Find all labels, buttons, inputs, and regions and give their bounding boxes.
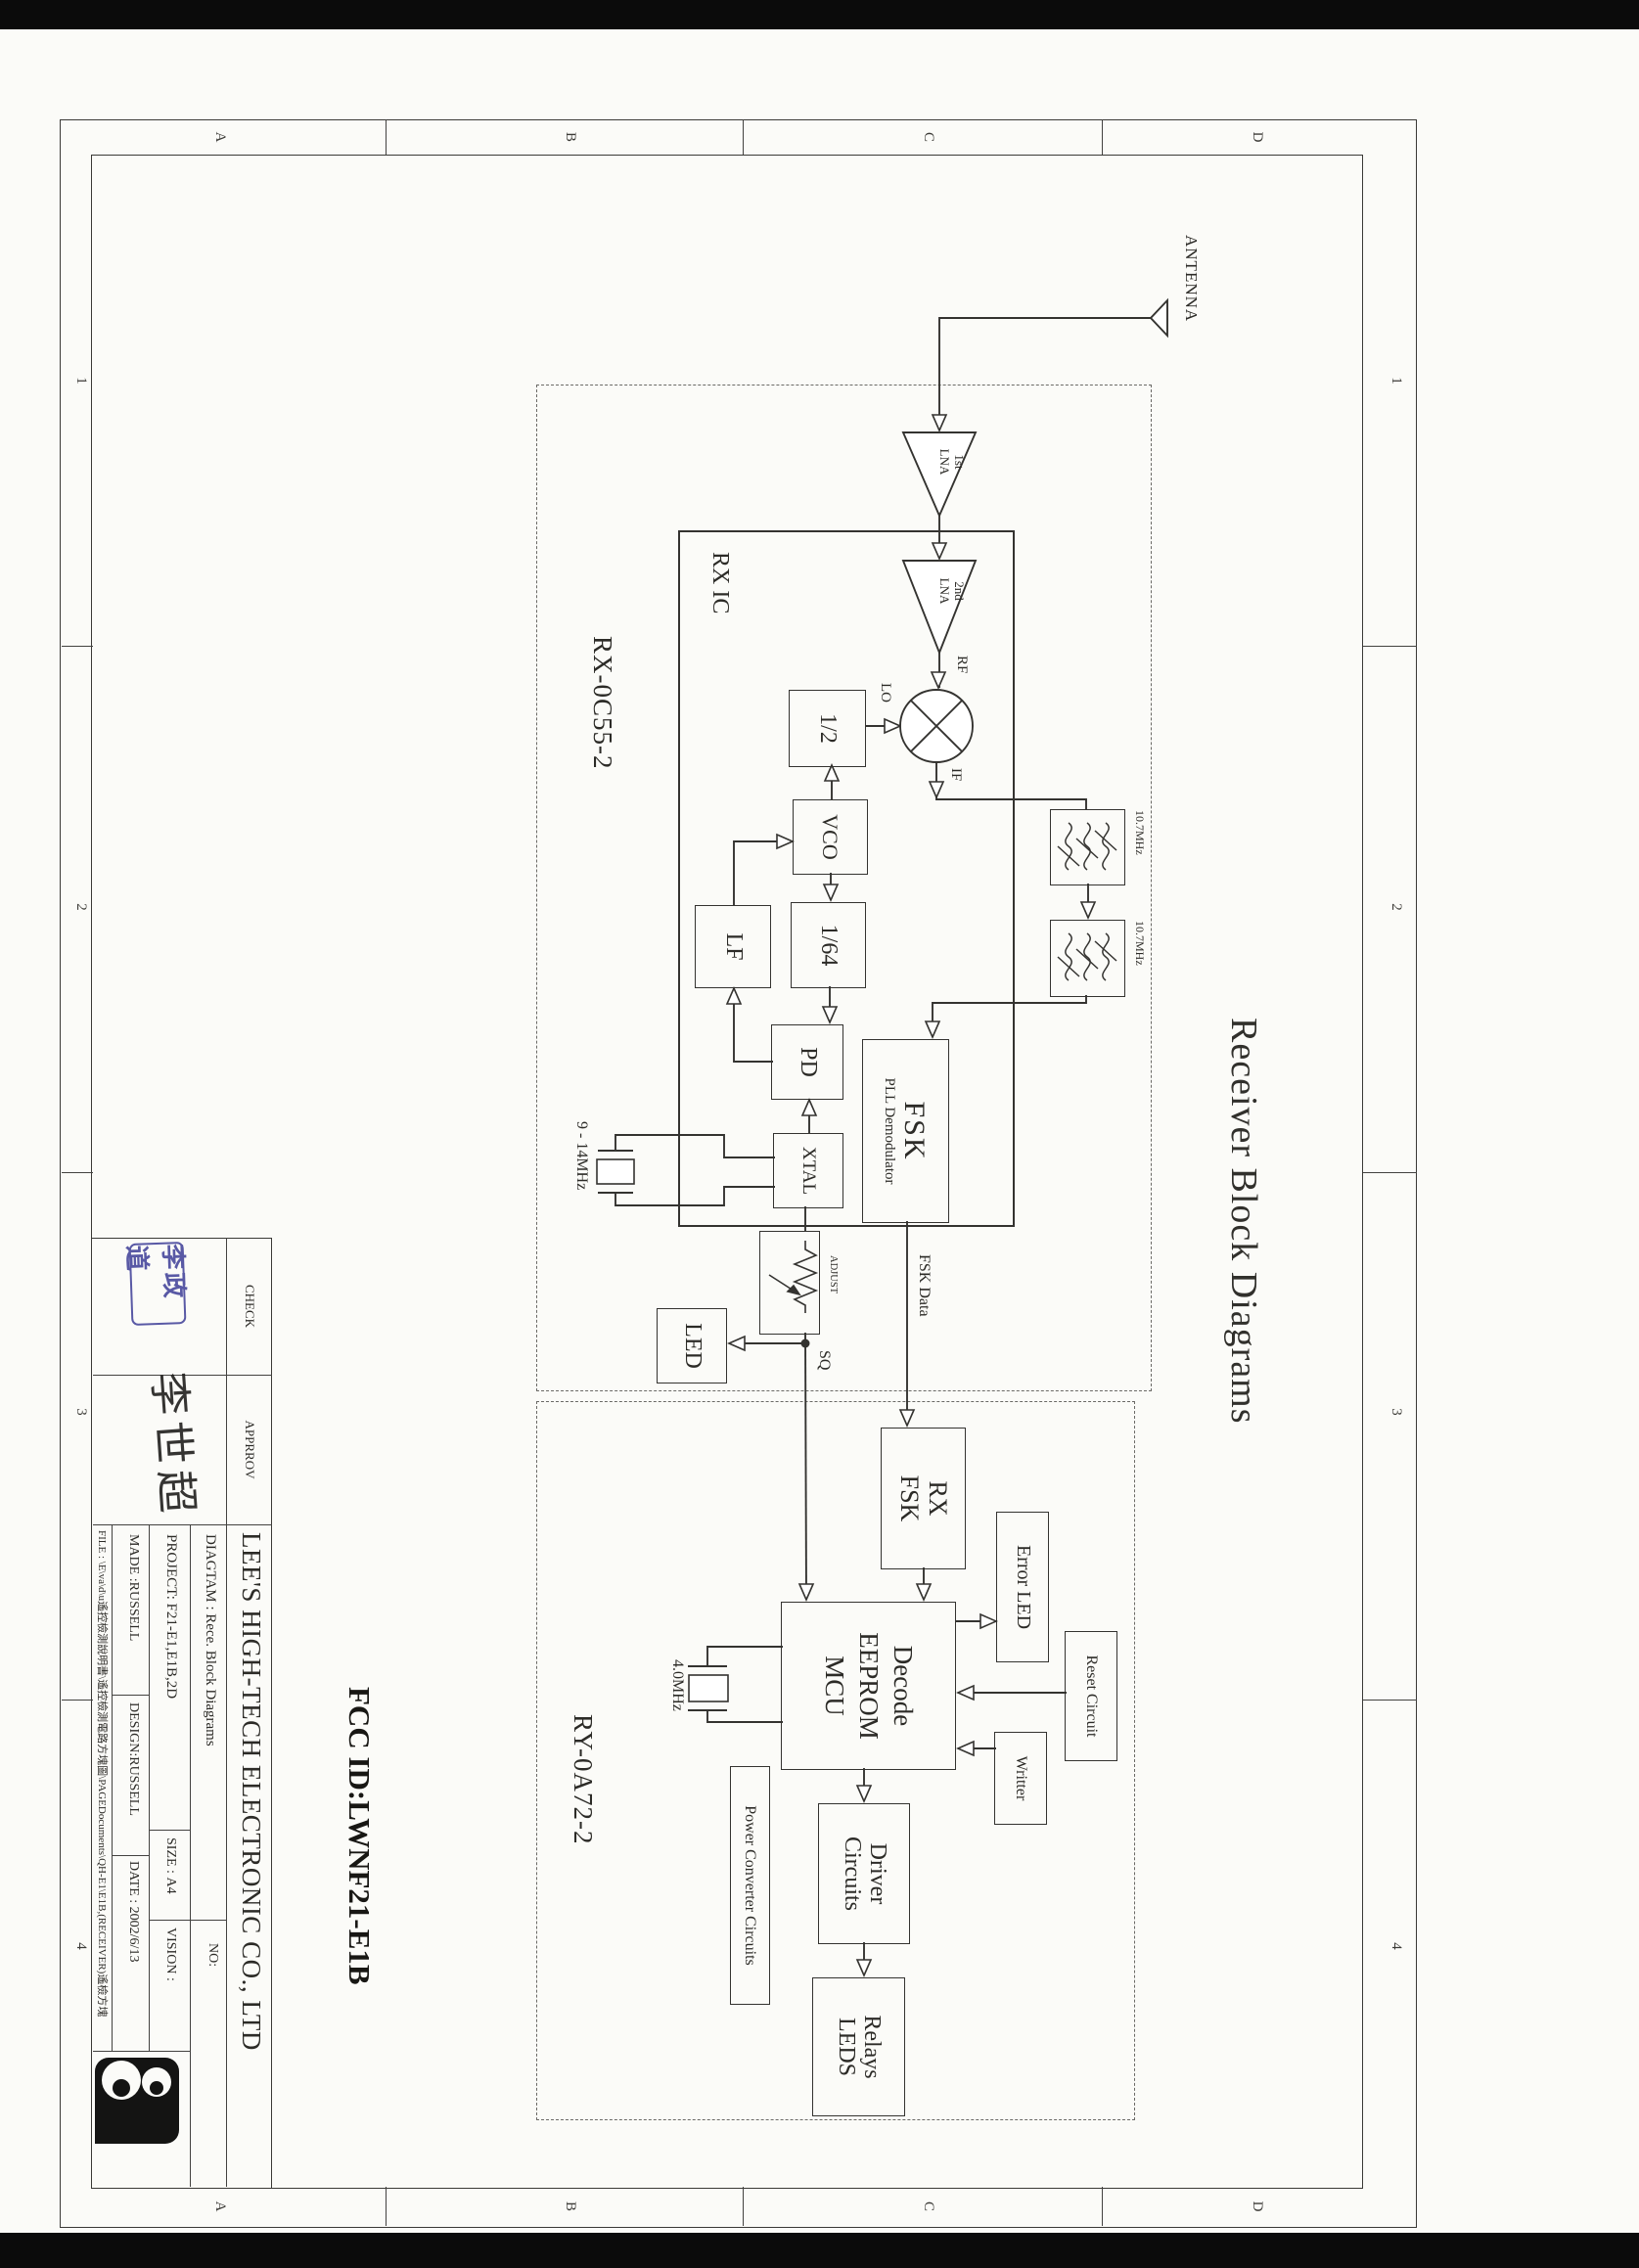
adjust-pot-box: [759, 1231, 820, 1335]
check-label: CHECK: [242, 1238, 257, 1375]
mcu-box: DecodeEEPROMMCU: [781, 1602, 956, 1770]
if-label: IF: [947, 768, 964, 781]
wire-junction-dot: [801, 1339, 810, 1348]
if-freq2-label: 10.7MHz: [1132, 921, 1147, 966]
error-led-box: Error LED: [996, 1512, 1049, 1662]
arrow-into-lna1: [933, 415, 946, 431]
fsk-demodulator-box: FSK PLL Demodulator: [862, 1039, 949, 1223]
rx-ic-label: RX IC: [706, 552, 733, 613]
check-stamp: 李政道: [129, 1242, 187, 1326]
lna2-label: 2ndLNA: [936, 565, 966, 617]
scanned-page: { "document": { "title": "Receiver Block…: [0, 0, 1639, 2268]
project-row: PROJECT: F21-E1,E1B,2D: [162, 1534, 179, 1699]
no-label: NO:: [205, 1943, 220, 1967]
approve-signature: 李世超: [141, 1370, 213, 1520]
rf-label: RF: [953, 656, 970, 673]
arrow-into-led: [729, 1337, 745, 1350]
if-filter2-box: [1050, 920, 1125, 997]
led-box: LED: [657, 1308, 727, 1383]
arrow-into-driver: [857, 1786, 871, 1801]
rx-ic-box: [678, 530, 1015, 1227]
adjust-label: ADJUST: [828, 1255, 839, 1293]
if-freq1-label: 10.7MHz: [1132, 810, 1147, 855]
lna1-label: 1stLNA: [936, 436, 966, 487]
drawing-sheet: D C B A D C B A 1 2 3 4 1 2 3 4 Receiver…: [0, 0, 1639, 2268]
mcu-clock-label: 4.0MHz: [668, 1659, 686, 1711]
arrow-into-filter2: [1081, 902, 1095, 918]
arrow-into-errorled: [980, 1614, 996, 1628]
title-block-line: [190, 1524, 191, 2187]
title-block-line: [93, 1524, 272, 1525]
divider-half-box: 1/2: [789, 690, 866, 767]
date-cell: DATE : 2002/6/13: [125, 1861, 141, 1962]
approve-label: APPRROV: [242, 1375, 257, 1524]
title-block-line: [113, 1695, 150, 1696]
rx-fsk-box: RXFSK: [881, 1428, 966, 1569]
title-block-line: [149, 1524, 150, 2051]
antenna-icon: [1130, 300, 1167, 336]
wire-antenna-to-lna1: [939, 318, 1152, 431]
file-cell: FILE : \E\va\d\u遙控檢測說明書\遙控檢測電路方塊圖\PAGEDo…: [95, 1530, 111, 2137]
lo-label: LO: [877, 683, 893, 703]
title-block-line: [113, 1855, 150, 1856]
wire-sq-to-mcu: [805, 1333, 806, 1598]
relays-leds-box: RelaysLEDS: [812, 1977, 905, 2116]
design-cell: DESIGN:RUSSELL: [125, 1702, 141, 1816]
title-block-line: [150, 1920, 227, 1921]
xtal-box: XTAL: [773, 1133, 843, 1208]
divider-64-box: 1/64: [791, 902, 866, 988]
crystal-9-14-icon: [597, 1151, 634, 1193]
driver-circuits-box: DriverCircuits: [818, 1803, 910, 1944]
arrow-reset-into-mcu: [958, 1686, 974, 1700]
reset-circuit-box: Reset Circuit: [1065, 1631, 1117, 1761]
power-converter-box: Power Converter Circuits: [730, 1766, 770, 2005]
sq-label: SQ: [815, 1350, 833, 1370]
title-block-line: [226, 1238, 227, 2187]
if-filter1-box: [1050, 809, 1125, 885]
fsk-data-label: FSK Data: [915, 1254, 933, 1317]
arrow-into-rxfsk: [900, 1410, 914, 1426]
made-cell: MADE :RUSSELL: [125, 1534, 141, 1641]
arrow-writter-into-mcu: [958, 1742, 974, 1755]
lf-box: LF: [695, 905, 771, 988]
xtal-range-label: 9 - 14MHz: [572, 1121, 590, 1190]
crystal-4mhz-icon: [688, 1666, 728, 1710]
size-cell: SIZE : A4: [162, 1837, 178, 1894]
title-block-line: [150, 1830, 191, 1831]
vision-cell: VISION :: [162, 1928, 178, 1981]
arrow-sq-into-mcu: [799, 1584, 813, 1600]
diagram-row: DIAGTAM : Rece. Block Diagrams: [202, 1534, 218, 1746]
writter-box: Writter: [994, 1732, 1047, 1825]
company-name: LEE'S HIGH-TECH ELECTRONIC CO., LTD: [236, 1532, 266, 2051]
arrow-into-relays: [857, 1960, 871, 1975]
arrow-rxfsk-into-mcu: [917, 1584, 931, 1600]
pd-box: PD: [771, 1024, 843, 1100]
vco-box: VCO: [793, 799, 868, 875]
title-block-line: [112, 1524, 113, 2051]
